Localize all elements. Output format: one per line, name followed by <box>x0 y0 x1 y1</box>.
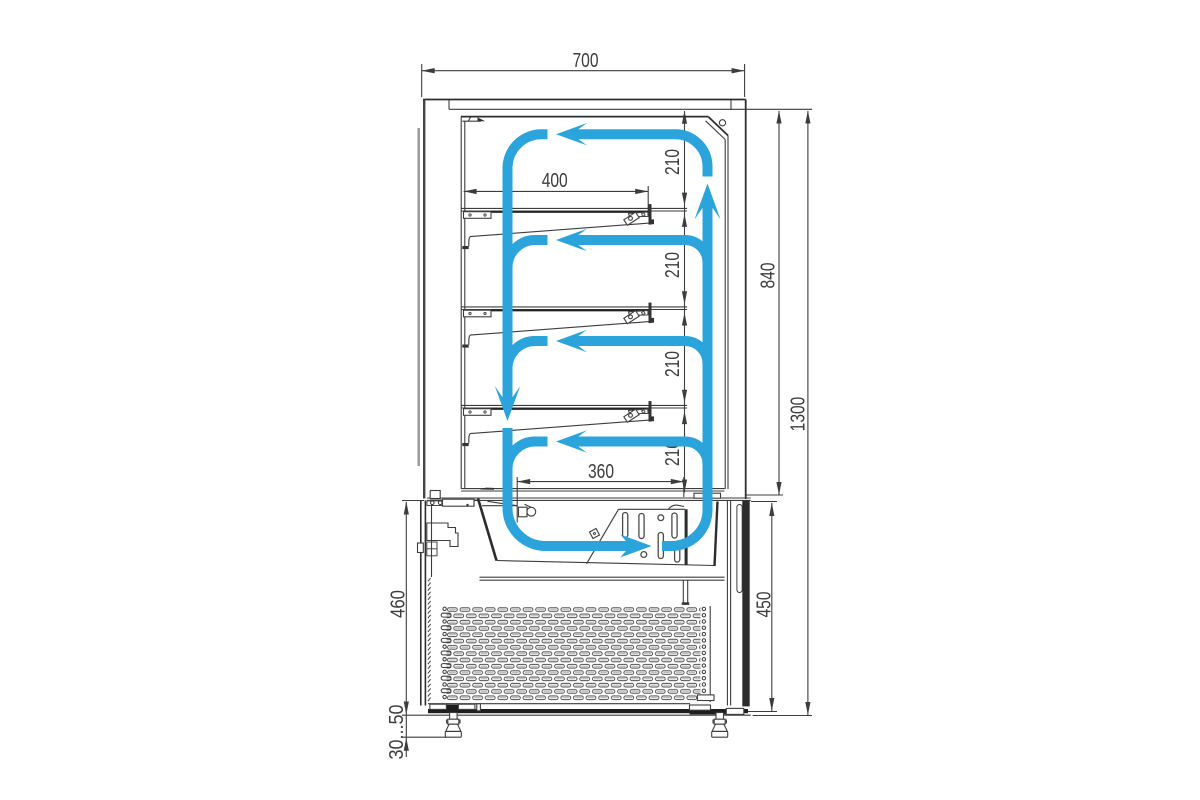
svg-text:360: 360 <box>588 460 614 482</box>
svg-text:30...50: 30...50 <box>386 704 408 759</box>
svg-text:400: 400 <box>542 169 568 191</box>
svg-text:700: 700 <box>572 49 598 71</box>
svg-text:450: 450 <box>752 591 774 617</box>
svg-text:210: 210 <box>661 252 683 278</box>
svg-text:210: 210 <box>661 351 683 377</box>
svg-text:460: 460 <box>386 590 409 618</box>
svg-text:1300: 1300 <box>786 397 808 432</box>
svg-text:840: 840 <box>757 262 779 288</box>
svg-text:210: 210 <box>661 149 683 175</box>
